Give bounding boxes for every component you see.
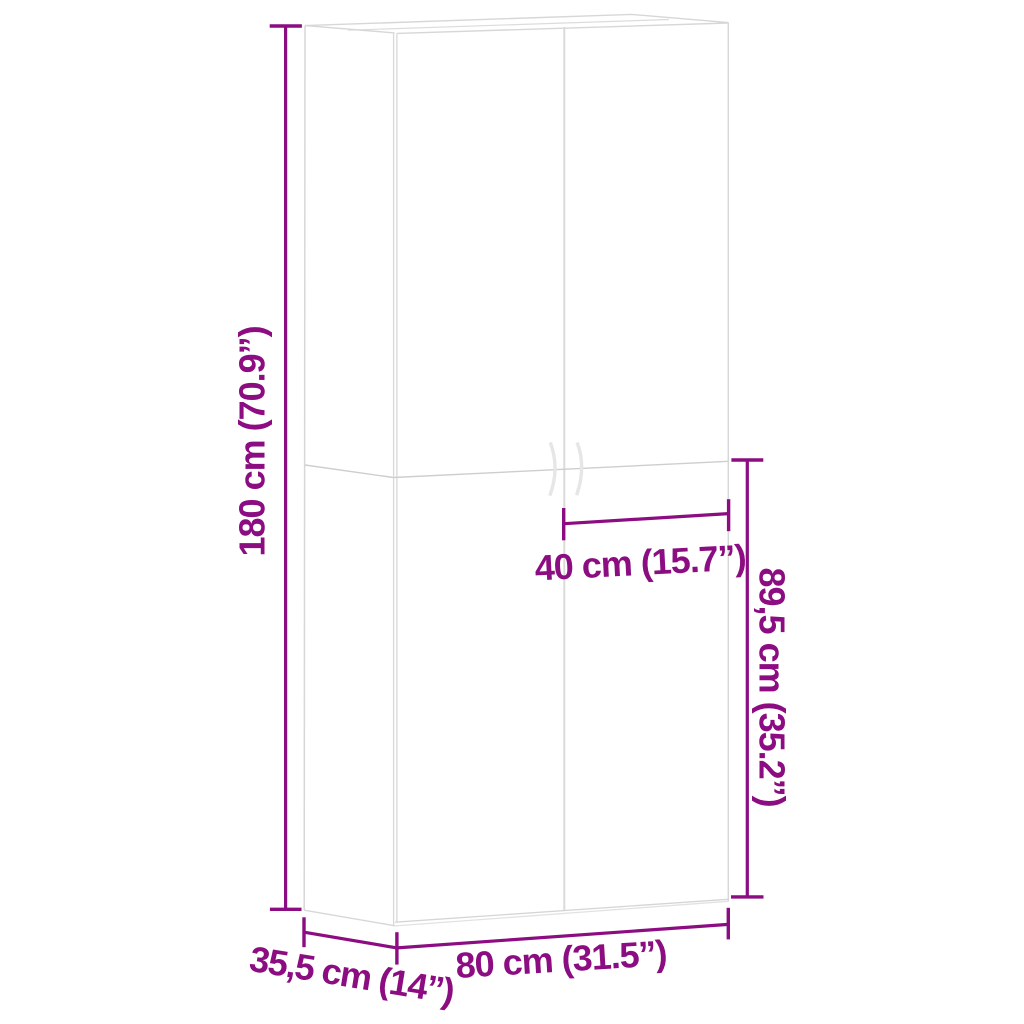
svg-text:89,5 cm (35.2”): 89,5 cm (35.2”) <box>752 568 793 807</box>
svg-text:180 cm (70.9”): 180 cm (70.9”) <box>232 326 273 556</box>
